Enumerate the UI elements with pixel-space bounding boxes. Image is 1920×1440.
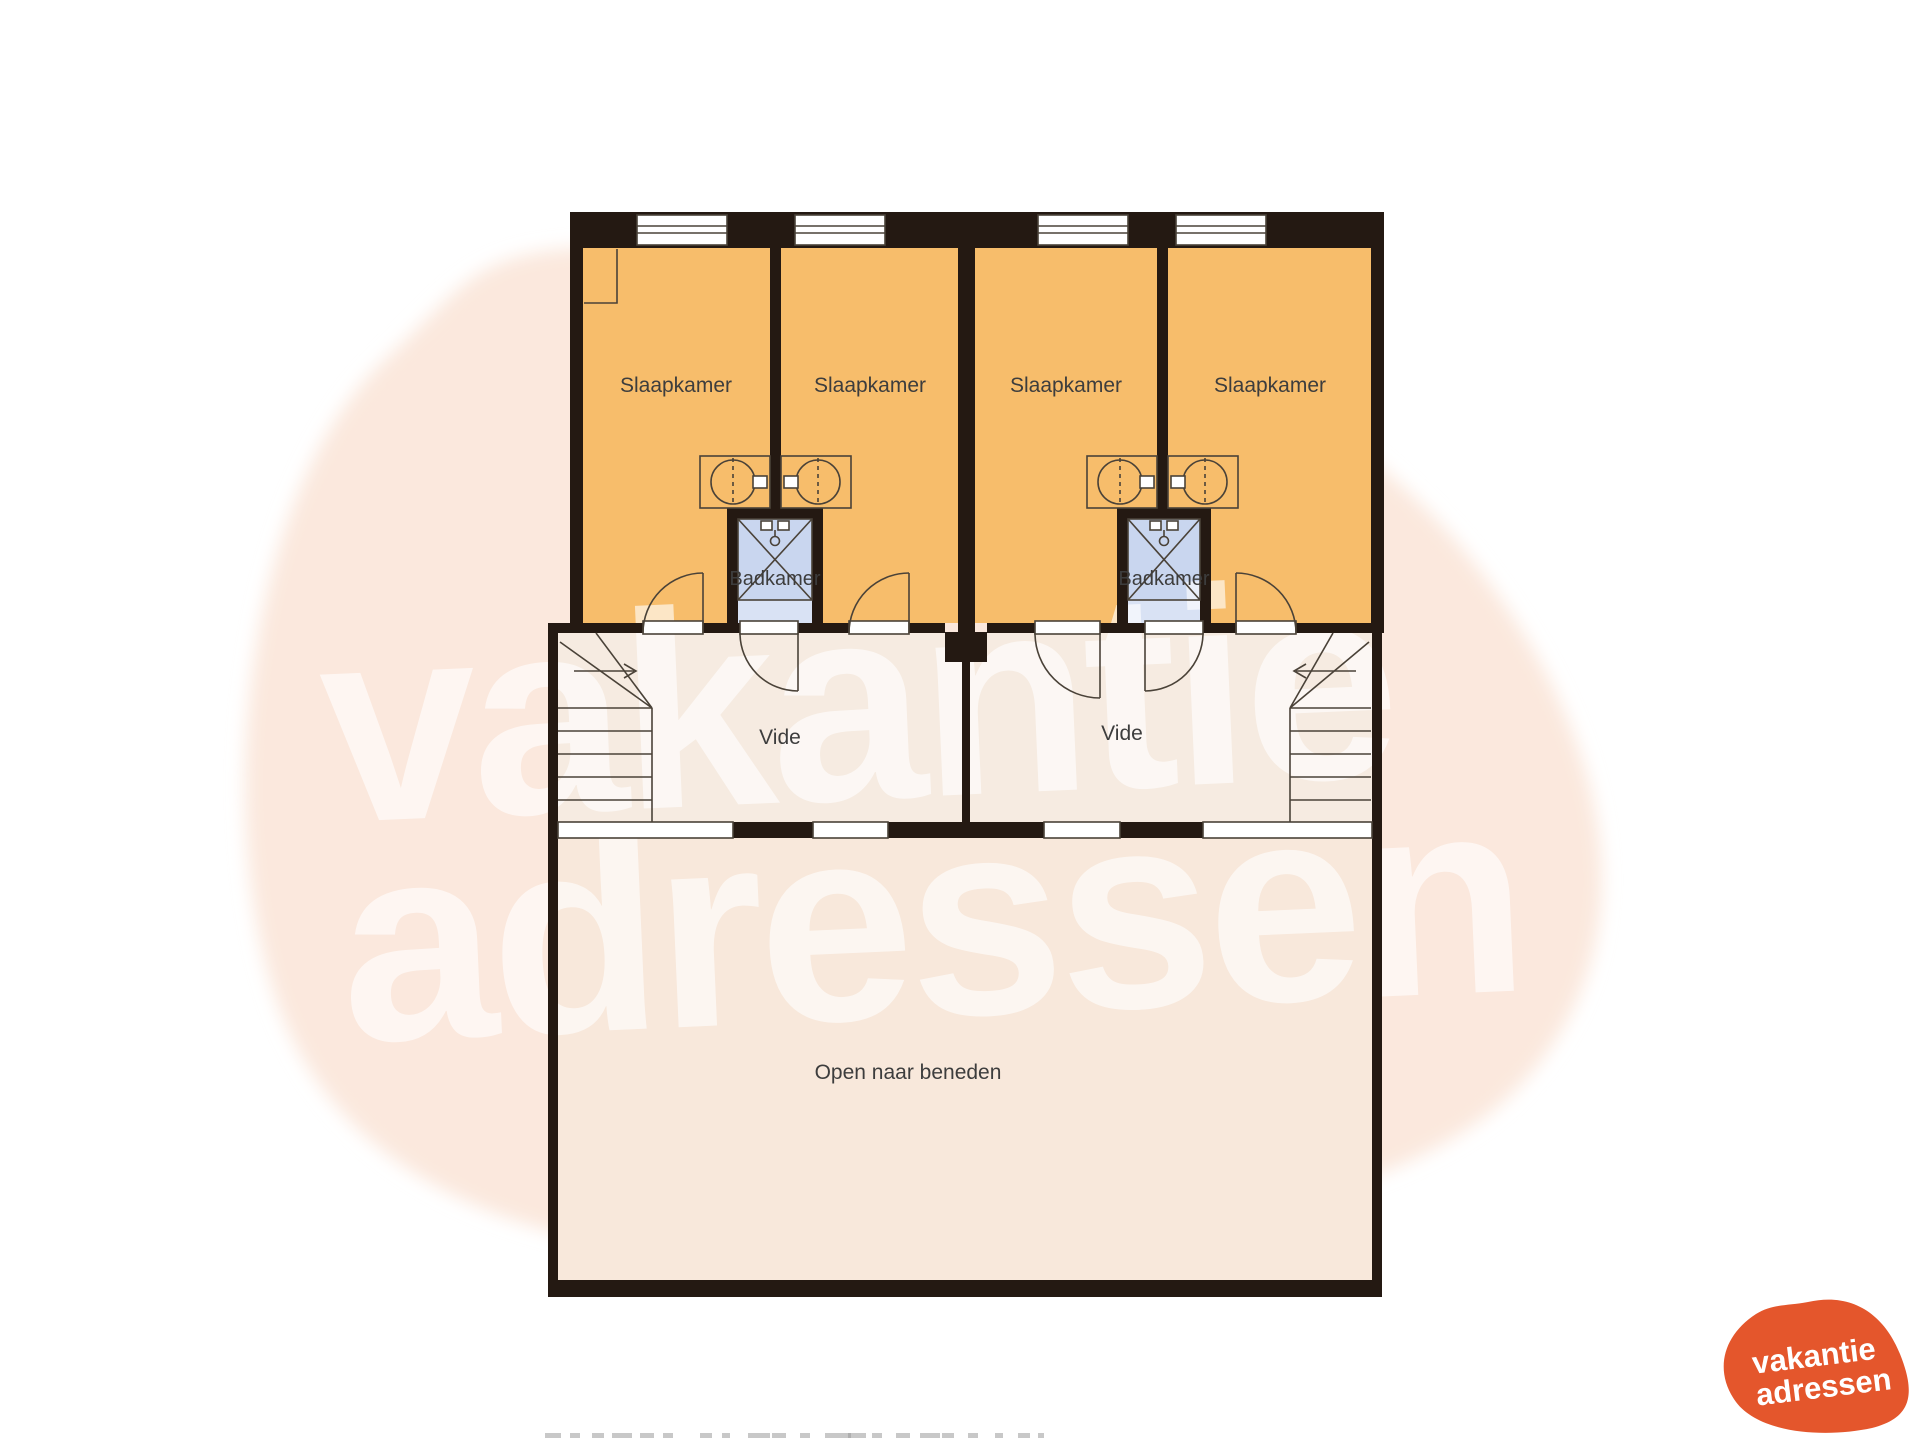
floorplan-canvas: vakantie adressen: [0, 0, 1920, 1440]
vide-left-label: Vide: [759, 726, 801, 749]
vide-right-label: Vide: [1101, 722, 1143, 745]
open-area-label: Open naar beneden: [815, 1061, 1002, 1084]
watermark-line2: adressen: [334, 738, 1528, 1101]
bedroom2-label: Slaapkamer: [814, 374, 926, 397]
window-3: [1038, 215, 1128, 245]
watermark: vakantie adressen: [314, 519, 1528, 1102]
window-4: [1176, 215, 1266, 245]
window-1: [637, 215, 727, 245]
bedroom1-label: Slaapkamer: [620, 374, 732, 397]
floorplan-page: vakantie adressen: [0, 0, 1920, 1440]
bathroom-right-label: Badkamer: [1118, 568, 1209, 590]
brand-logo: vakantie adressen: [1724, 1300, 1909, 1433]
bedroom3-label: Slaapkamer: [1010, 374, 1122, 397]
window-2: [795, 215, 885, 245]
footer-caption-cutoff: [545, 1433, 1044, 1438]
bedroom4-label: Slaapkamer: [1214, 374, 1326, 397]
bathroom-left-label: Badkamer: [729, 568, 820, 590]
